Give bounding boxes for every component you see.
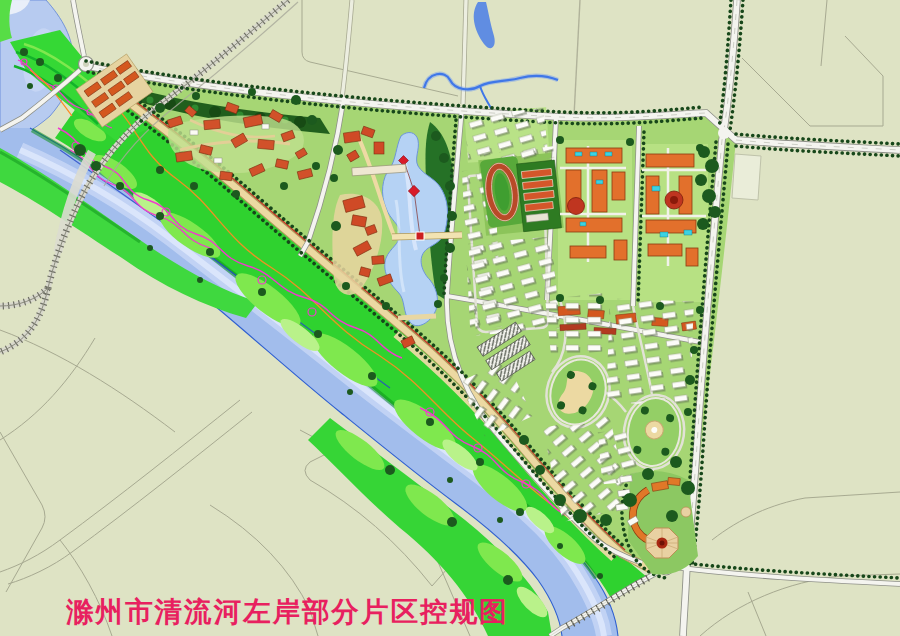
planning-map: 滁州市清流河左岸部分片区控规图: [0, 0, 900, 636]
school-campus: [517, 160, 562, 232]
planning-map-art: 滁州市清流河左岸部分片区控规图: [0, 0, 900, 636]
map-title: 滁州市清流河左岸部分片区控规图: [65, 596, 509, 627]
